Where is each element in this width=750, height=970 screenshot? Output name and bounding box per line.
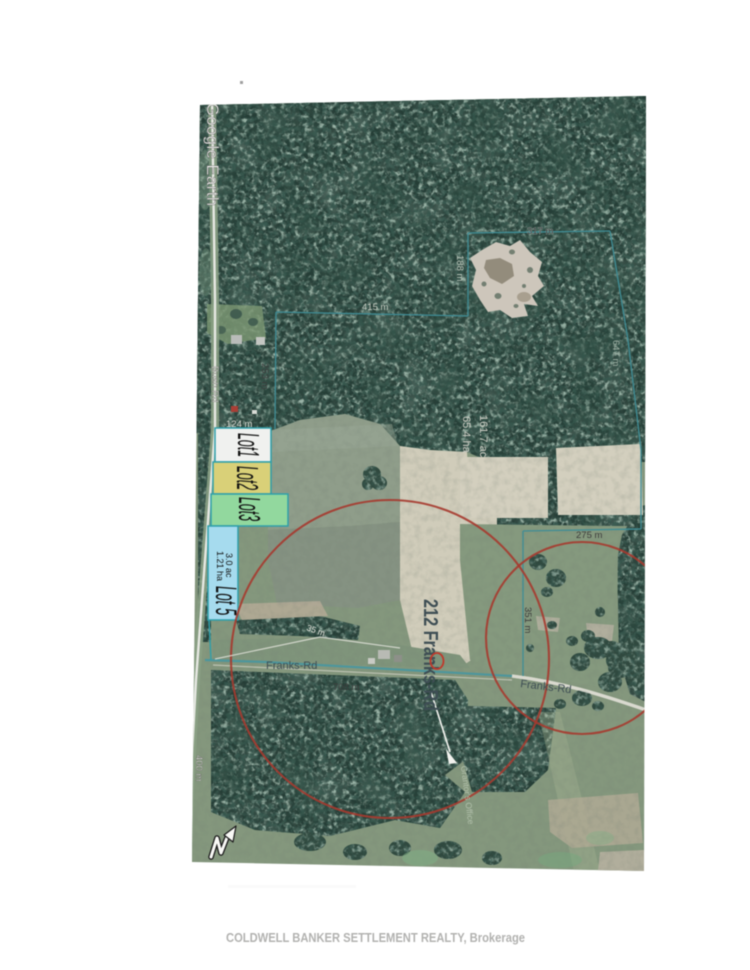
svg-text:Franks-Rd: Franks-Rd: [266, 660, 317, 672]
svg-text:647 m: 647 m: [610, 340, 621, 366]
svg-text:Bush Rd: Bush Rd: [209, 366, 220, 402]
svg-text:351 m: 351 m: [522, 607, 533, 633]
svg-text:708 m: 708 m: [333, 682, 359, 693]
svg-text:317 m: 317 m: [527, 226, 553, 237]
svg-text:Lot1: Lot1: [230, 433, 264, 457]
svg-text:Lot3: Lot3: [231, 497, 265, 521]
svg-text:1.21 ha: 1.21 ha: [215, 551, 225, 581]
svg-text:400 m: 400 m: [193, 755, 204, 781]
svg-text:COLDWELL BANKER SETTLEMENT REA: COLDWELL BANKER SETTLEMENT REALTY, Broke…: [226, 931, 525, 945]
svg-text:188 m: 188 m: [454, 255, 465, 281]
svg-text:212 Franks-Rd: 212 Franks-Rd: [419, 599, 441, 711]
svg-text:161.7 ac: 161.7 ac: [477, 415, 489, 458]
svg-text:Lot2: Lot2: [229, 466, 263, 490]
svg-text:124 m: 124 m: [226, 419, 252, 430]
svg-text:275 m: 275 m: [576, 530, 602, 541]
svg-text:Google Earth: Google Earth: [203, 103, 221, 206]
svg-text:415 m: 415 m: [362, 302, 388, 313]
svg-text:253 m: 253 m: [259, 363, 270, 389]
svg-text:65.4 ha: 65.4 ha: [460, 416, 472, 454]
